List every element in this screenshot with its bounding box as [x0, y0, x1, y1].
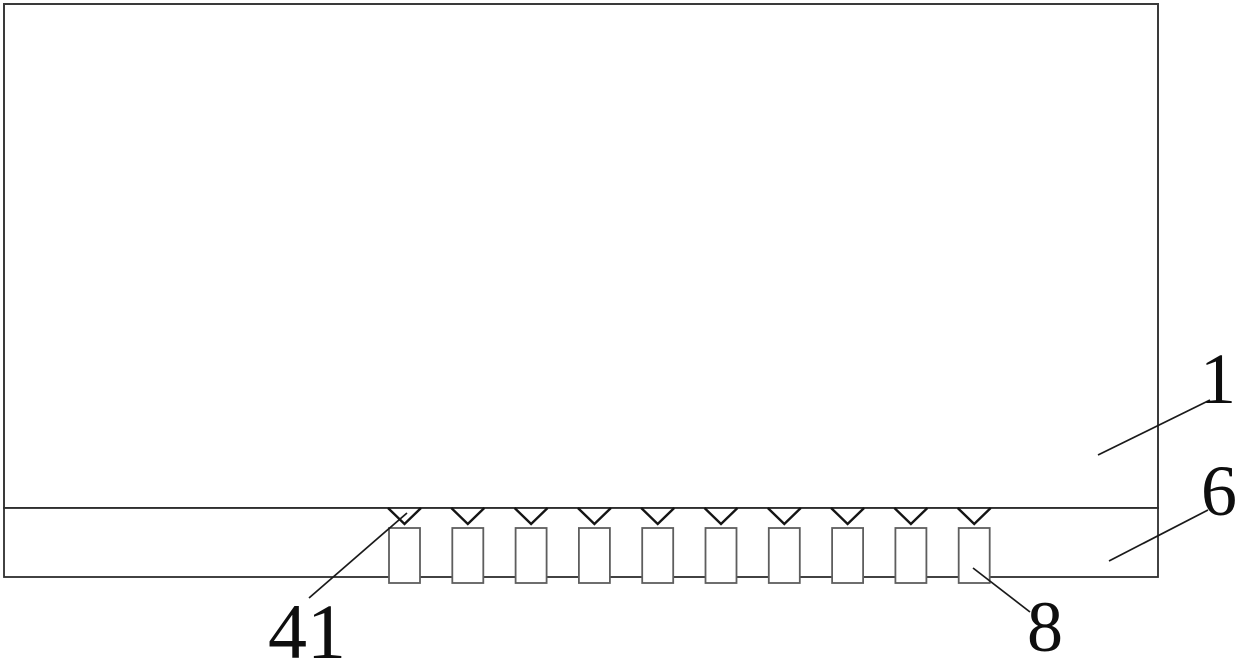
- block: [389, 528, 420, 583]
- block: [579, 528, 610, 583]
- block: [895, 528, 926, 583]
- block: [769, 528, 800, 583]
- block: [452, 528, 483, 583]
- block: [959, 528, 990, 583]
- block: [516, 528, 547, 583]
- label-base-strip: 6: [1201, 451, 1237, 531]
- label-panel-body: 1: [1200, 339, 1236, 419]
- block: [832, 528, 863, 583]
- label-v-notch: 41: [268, 588, 346, 660]
- panel-body: [4, 4, 1158, 508]
- label-block: 8: [1027, 587, 1063, 660]
- block: [706, 528, 737, 583]
- patent-figure: 1 6 41 8: [0, 0, 1240, 660]
- block: [642, 528, 673, 583]
- figure-canvas: 1 6 41 8: [0, 0, 1240, 660]
